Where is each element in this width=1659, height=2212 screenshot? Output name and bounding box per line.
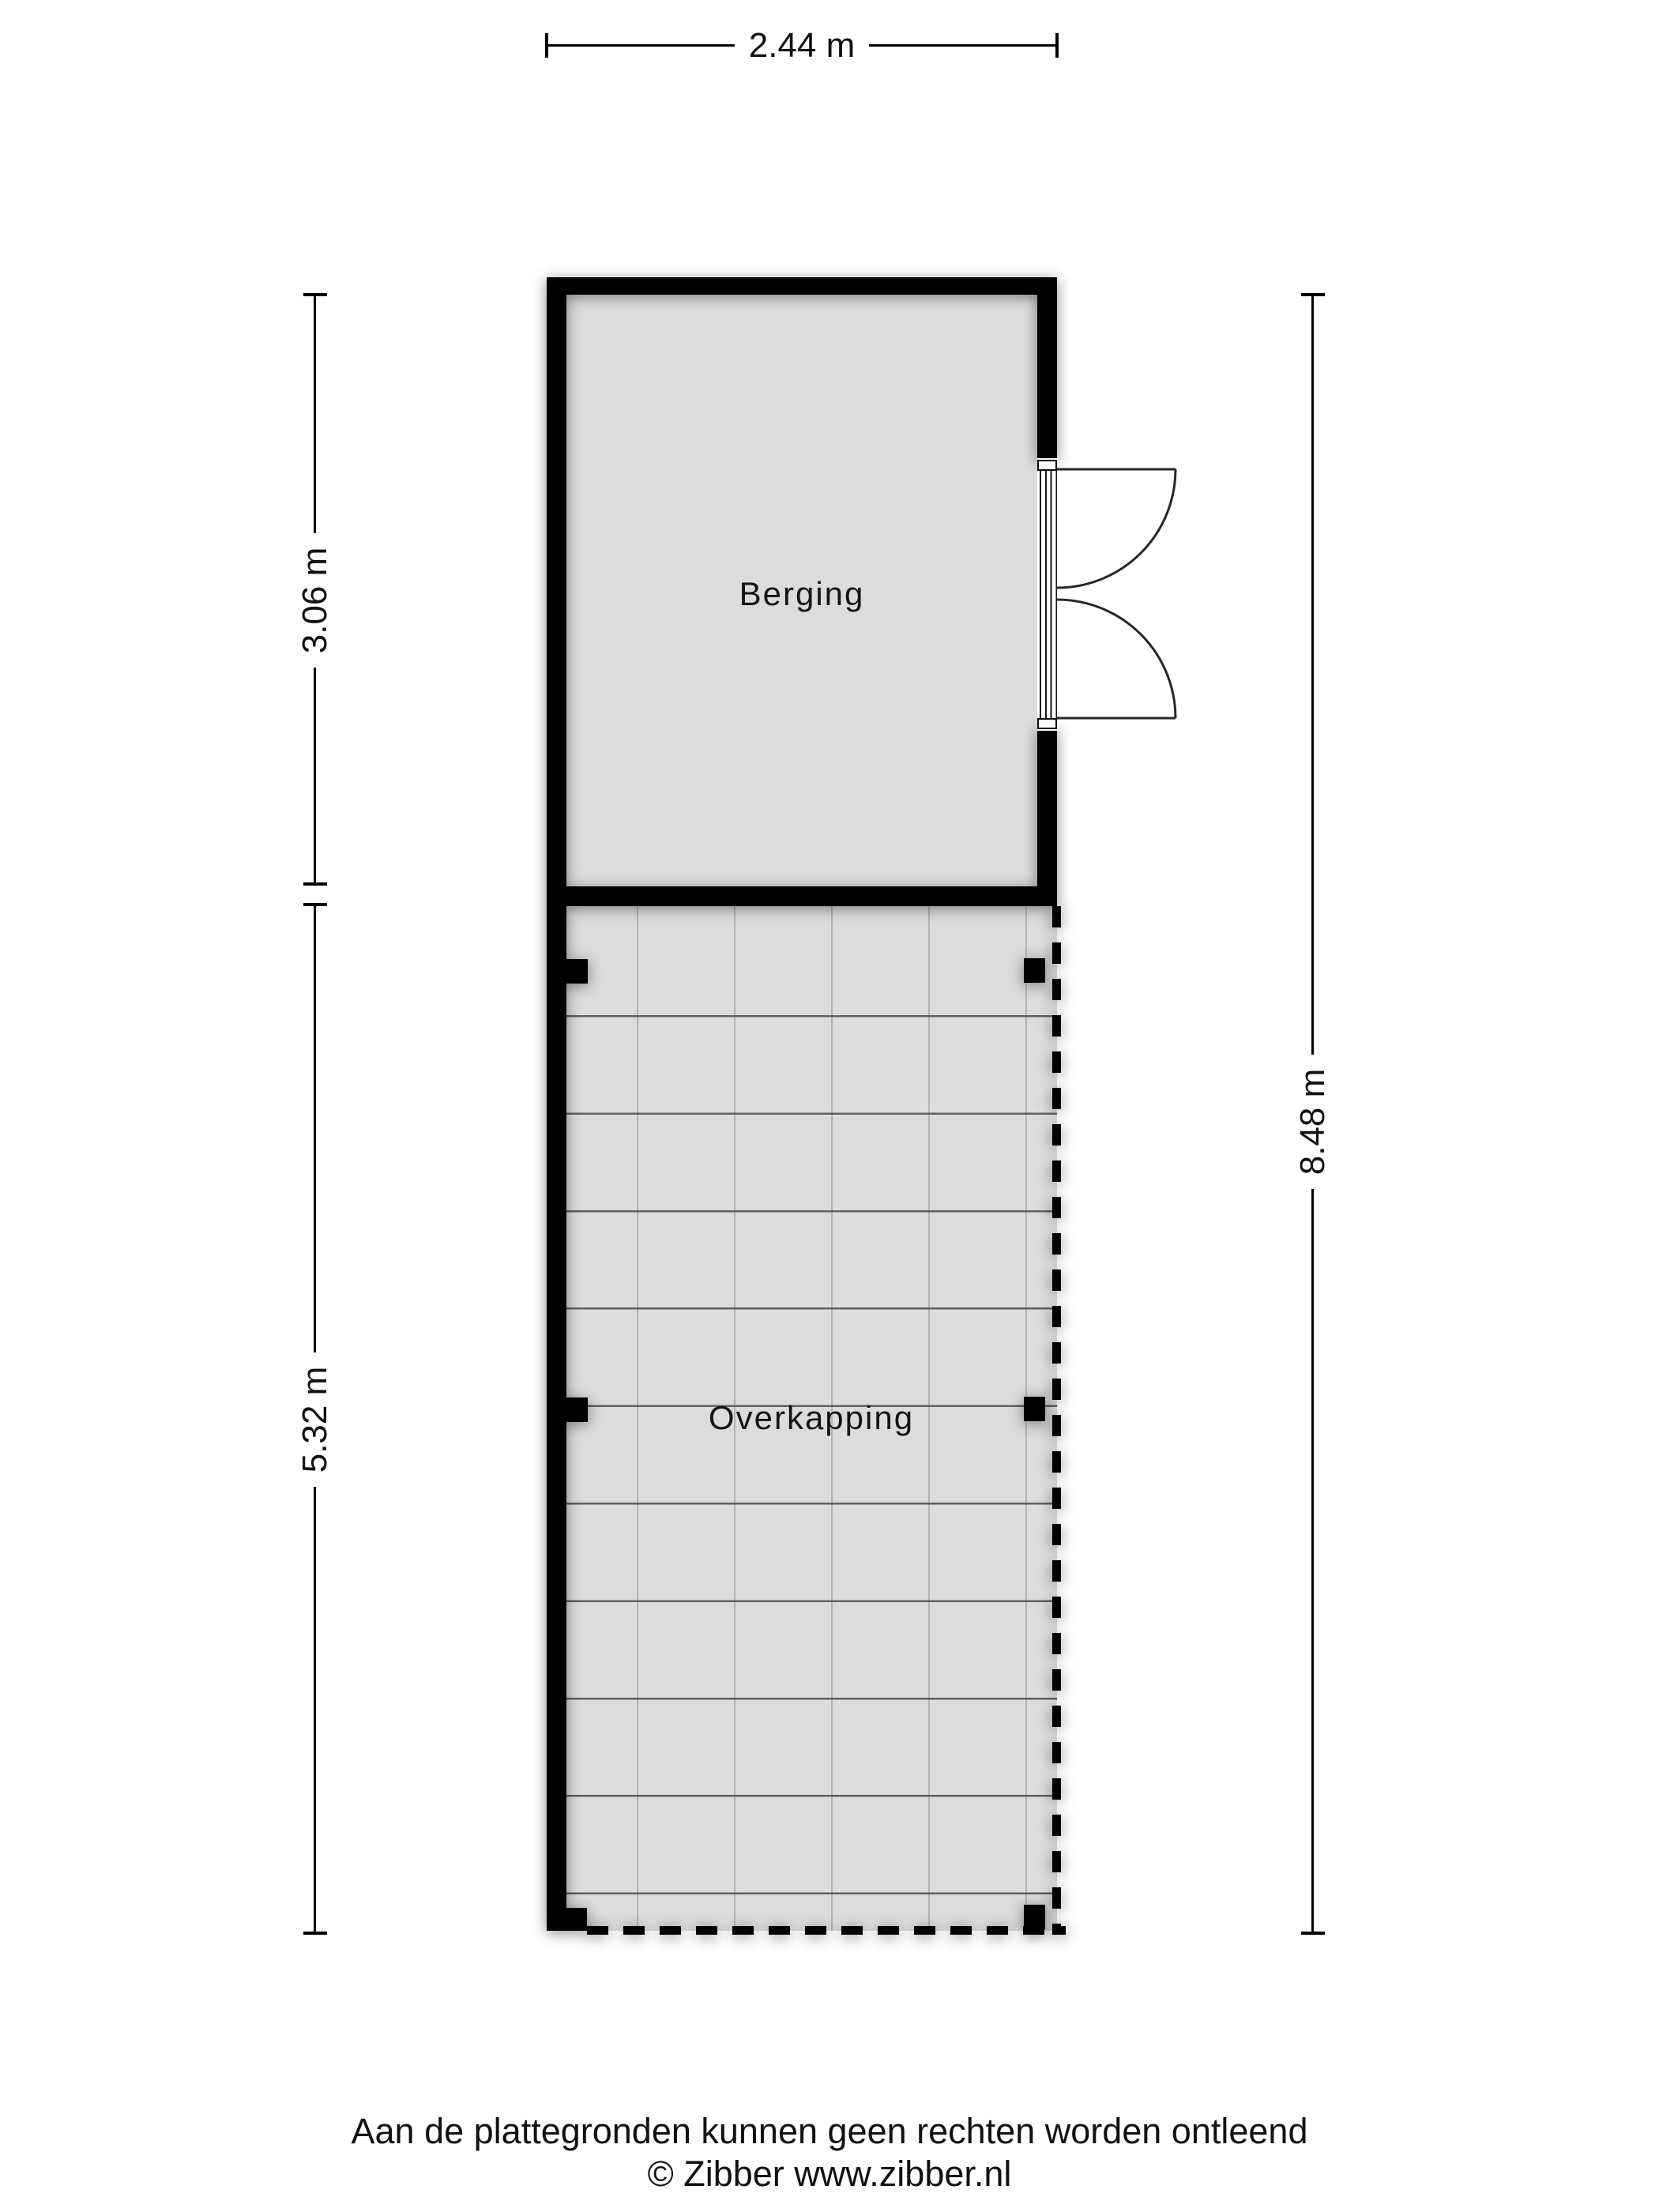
wall-top (547, 277, 1057, 295)
dimension-tick (545, 33, 548, 58)
dimension-label-left-lower: 5.32 m (295, 1367, 335, 1473)
dimension-line (869, 44, 1057, 47)
dimension-label-left-upper: 3.06 m (295, 547, 335, 654)
footer-copyright: © Zibber www.zibber.nl (0, 2154, 1659, 2195)
dimension-line (1311, 295, 1314, 1055)
dimension-line (314, 295, 316, 533)
footer-disclaimer: Aan de plattegronden kunnen geen rechten… (0, 2111, 1659, 2152)
wall-right-upper (1037, 277, 1057, 460)
door-frame-lines (1040, 471, 1057, 718)
column-post (1024, 958, 1045, 983)
dimension-label-right: 8.48 m (1293, 1069, 1333, 1176)
room-label-berging: Berging (739, 575, 865, 613)
floorplan-canvas: 2.44 m 3.06 m 5.32 m 8.48 m Berging Over… (0, 0, 1659, 2212)
dimension-tick (1055, 33, 1059, 58)
dimension-tick (303, 882, 327, 886)
dimension-label-top: 2.44 m (749, 26, 856, 66)
wall-corner-foot (566, 1908, 587, 1931)
column-post (1024, 1397, 1045, 1421)
double-door-swing-icon (1057, 463, 1191, 724)
column-post (566, 959, 588, 984)
column-post (566, 1398, 588, 1422)
door-jamb-top (1037, 460, 1057, 471)
wall-middle (547, 886, 1057, 906)
building-structure (0, 0, 1659, 2212)
dimension-tick (303, 293, 327, 296)
dimension-line (314, 905, 316, 1352)
door-jamb-bottom (1037, 718, 1057, 729)
dimension-line (547, 44, 735, 47)
dimension-tick (1301, 1932, 1325, 1935)
room-label-overkapping: Overkapping (709, 1399, 914, 1437)
dimension-line (314, 1487, 316, 1935)
wall-left (547, 277, 566, 1931)
dimension-tick (1301, 293, 1325, 296)
wall-right-lower (1037, 728, 1057, 906)
dimension-tick (303, 903, 327, 906)
dimension-tick (303, 1932, 327, 1935)
dimension-line (314, 668, 316, 886)
open-boundary-right-dashed-line (1052, 906, 1061, 1935)
dimension-line (1311, 1189, 1314, 1935)
open-boundary-bottom-dashed-line (587, 1926, 1066, 1935)
